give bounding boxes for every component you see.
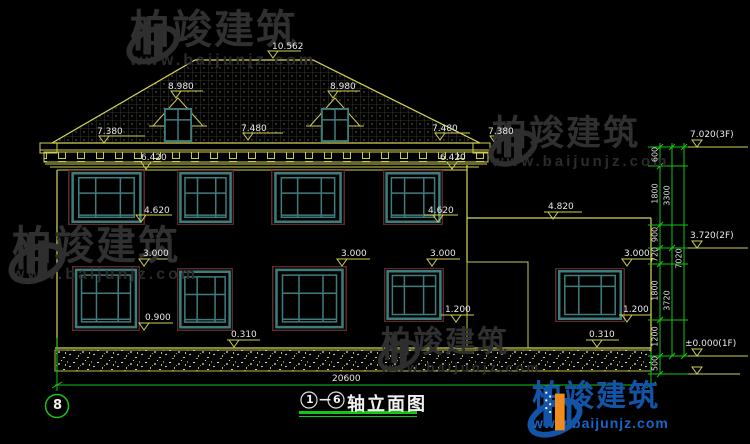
brand-logo-icon <box>526 382 584 440</box>
watermark-logo-icon <box>6 226 68 288</box>
watermark-bottom-left: 柏竣建筑 www.baijunjz.com <box>6 226 198 284</box>
level-sill2f-left: 4.620 <box>144 206 170 216</box>
watermark-top: 柏竣建筑 www.baijunjz.com <box>124 10 316 70</box>
level-ridge: 10.562 <box>272 42 304 52</box>
drawing-linework <box>0 0 750 444</box>
level-cornice-right: 6.420 <box>440 153 466 163</box>
level-eave-inner-right: 7.480 <box>432 124 458 134</box>
dim-chain-500: 500 <box>651 343 660 385</box>
level-plinth-right: 0.310 <box>589 330 615 340</box>
window-1f-3 <box>273 267 347 331</box>
level-floor1: ±0.000(1F) <box>685 339 736 349</box>
level-annex-roof: 4.820 <box>548 202 574 212</box>
plinth-band <box>55 350 651 371</box>
level-sill1f-1: 1.200 <box>445 305 471 315</box>
cornice <box>40 143 490 170</box>
sheet-number: 8 <box>53 398 62 413</box>
level-sill1f-left: 0.900 <box>145 313 171 323</box>
dormer-left-window <box>165 109 192 142</box>
window-2f-2 <box>178 171 234 225</box>
dim-chain-3720: 3720 <box>663 280 672 322</box>
drawing-title: 轴立面图 <box>347 390 427 416</box>
window-annex <box>556 269 625 322</box>
dim-chain-7020: 7020 <box>675 238 684 280</box>
level-eave-outer-right: 7.380 <box>488 127 514 137</box>
axis-from-digit: 1 <box>306 393 314 406</box>
dim-total-width: 20600 <box>332 374 361 384</box>
level-win1f-top-3: 3.000 <box>430 249 456 259</box>
level-eave-inner-left: 7.480 <box>241 124 267 134</box>
level-dormer-left: 8.980 <box>168 82 194 92</box>
dormer-right-window <box>322 109 349 142</box>
axis-to-digit: 6 <box>333 393 341 406</box>
level-dormer-right: 8.980 <box>330 82 356 92</box>
watermark-bottom-center: 柏竣建筑 www.baijunjz.com <box>376 328 541 375</box>
cad-elevation-drawing: 柏竣建筑 www.baijunjz.com 柏竣建筑 www.baijunjz.… <box>0 0 750 444</box>
dim-chain-1800a: 1800 <box>651 173 660 215</box>
watermark-right: 柏竣建筑 www.baijunjz.com <box>486 116 669 170</box>
level-win1f-top-1: 3.000 <box>143 249 169 259</box>
level-floor3: 7.020(3F) <box>690 130 734 140</box>
axis-dash: — <box>319 392 331 406</box>
watermark-logo-icon <box>486 116 540 170</box>
watermark-logo-icon <box>124 10 182 68</box>
level-cornice-left: 6.420 <box>141 153 167 163</box>
brand-logo: 柏竣建筑 www.baijunjz.com <box>526 382 669 431</box>
window-1f-4 <box>385 269 444 322</box>
window-2f-3 <box>272 171 345 225</box>
level-win1f-top-4: 3.000 <box>624 249 650 259</box>
dim-chain-1800b: 1800 <box>651 270 660 312</box>
dim-chain-3300: 3300 <box>663 175 672 217</box>
level-eave-outer-left: 7.380 <box>97 127 123 137</box>
watermark-logo-icon <box>376 328 422 374</box>
dim-chain-600: 600 <box>651 134 660 176</box>
level-sill2f-right: 4.620 <box>428 206 454 216</box>
level-floor2: 3.720(2F) <box>690 231 734 241</box>
level-win1f-top-2: 3.000 <box>341 249 367 259</box>
level-sill1f-2: 1.200 <box>623 305 649 315</box>
window-2f-1 <box>69 171 144 225</box>
level-plinth-left: 0.310 <box>231 330 257 340</box>
